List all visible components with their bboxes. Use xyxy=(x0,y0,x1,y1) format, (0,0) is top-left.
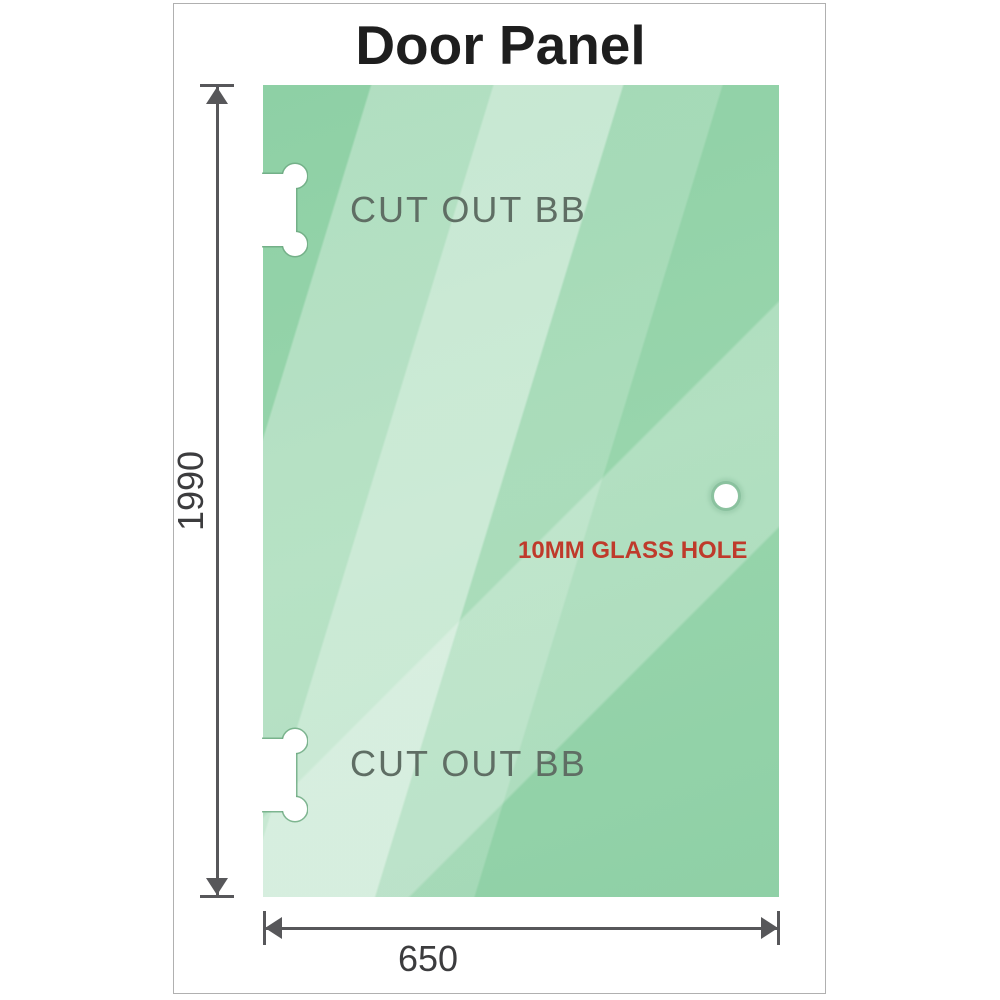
page-title: Door Panel xyxy=(173,13,828,77)
height-dimension-label: 1990 xyxy=(170,451,212,531)
hinge-cutout-top-icon xyxy=(262,162,308,258)
hinge-cutout-bottom-icon xyxy=(262,727,308,823)
arrow-left-icon xyxy=(265,917,282,939)
cutout-label-bottom: CUT OUT BB xyxy=(350,743,587,785)
cutout-label-top: CUT OUT BB xyxy=(350,189,587,231)
height-dimension-line xyxy=(216,85,219,897)
arrow-right-icon xyxy=(761,917,778,939)
height-dimension-tick-bottom xyxy=(200,895,234,898)
width-dimension-label: 650 xyxy=(398,938,458,980)
arrow-down-icon xyxy=(206,878,228,895)
glass-hole xyxy=(714,484,738,508)
glass-hole-label: 10MM GLASS HOLE xyxy=(518,537,747,565)
width-dimension-line xyxy=(264,927,779,930)
arrow-up-icon xyxy=(206,87,228,104)
diagram-canvas: Door Panel CUT OUT BB CUT OUT BB 10MM GL… xyxy=(0,0,1000,1000)
